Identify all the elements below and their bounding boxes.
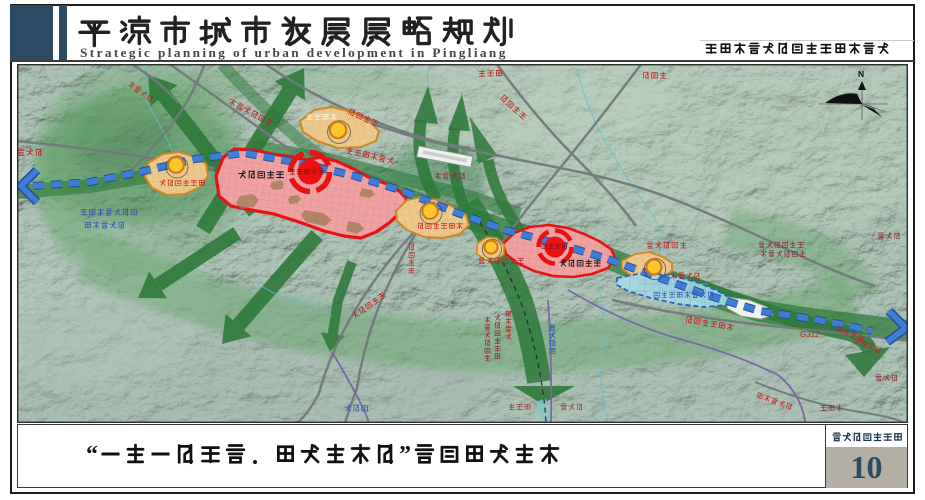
svg-text:G312: G312 <box>800 330 820 339</box>
svg-text:N: N <box>858 69 864 79</box>
svg-text:”: ” <box>399 442 411 468</box>
svg-text:“: “ <box>86 442 98 468</box>
